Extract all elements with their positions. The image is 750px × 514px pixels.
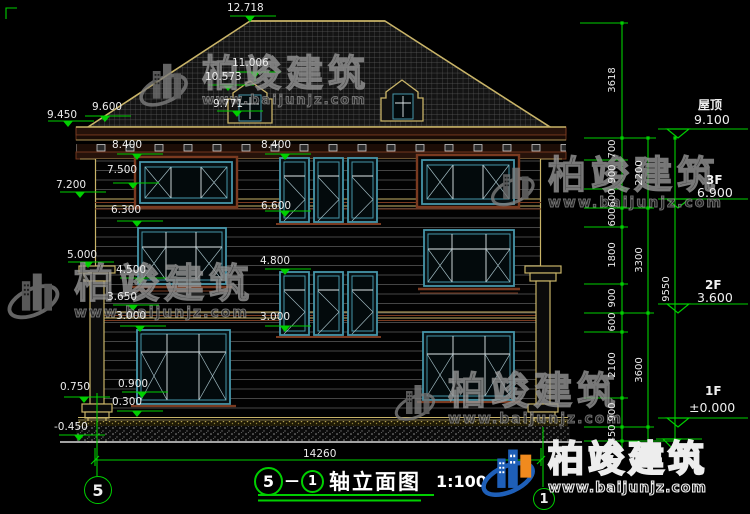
elevation-mark: 4.800 <box>260 256 290 267</box>
brand-name: 柏竣建筑 <box>548 442 708 478</box>
stair-windows-lower <box>276 272 381 337</box>
drawing-title: 5 — 1 轴立面图 1:100 <box>254 466 487 496</box>
level-name: 1F <box>705 385 722 397</box>
level-value: 3.600 <box>697 292 733 305</box>
level-value: 9.100 <box>694 114 730 127</box>
stair-windows-upper <box>276 158 381 224</box>
title-text: 轴立面图 <box>329 466 421 496</box>
chain-dim: 3300 <box>635 247 645 272</box>
title-axis-start-bubble: 5 <box>254 467 283 496</box>
elevation-mark: 3.000 <box>260 312 290 323</box>
elevation-mark: 0.900 <box>118 379 148 390</box>
elevation-mark: 6.600 <box>261 201 291 212</box>
window-1f-left <box>131 330 236 406</box>
title-dash: — <box>285 473 299 489</box>
chain-dim: 900 <box>608 164 618 183</box>
chain-dim: 9550 <box>662 276 672 301</box>
chain-dim: 600 <box>608 312 618 331</box>
level-value: ±0.000 <box>689 402 735 415</box>
elevation-mark: 3.000 <box>116 311 146 322</box>
brand-logo-icon <box>136 52 196 114</box>
overall-width-dim: 14260 <box>303 449 336 460</box>
elevation-mark: 7.200 <box>56 180 86 191</box>
elevation-mark: 10.573 <box>205 72 242 83</box>
elevation-mark: 0.300 <box>112 397 142 408</box>
elevation-mark: 8.400 <box>112 140 142 151</box>
window-3f-left <box>135 157 237 207</box>
cad-elevation-drawing: 柏竣建筑 www.baijunjz.com 柏竣建筑 www.baijunjz.… <box>0 0 750 514</box>
elevation-mark: -0.450 <box>54 422 88 433</box>
elevation-mark: 0.750 <box>60 382 90 393</box>
chain-dim: 1800 <box>608 242 618 267</box>
brand-logo-icon <box>392 374 442 428</box>
chain-dim: 2100 <box>608 352 618 377</box>
elevation-mark: 8.400 <box>261 140 291 151</box>
axis-bubble-5: 5 <box>84 476 112 504</box>
brand-logo-icon <box>4 262 68 326</box>
chain-dim: 3600 <box>635 357 645 382</box>
brand-logo-corner: 柏竣建筑 www.baijunjz.com <box>480 436 708 504</box>
watermark-url: www.baijunjz.com <box>74 304 254 324</box>
elevation-mark: 9.450 <box>47 110 77 121</box>
watermark-right: 柏竣建筑 www.baijunjz.com <box>488 156 723 214</box>
elevation-mark: 11.006 <box>232 58 269 69</box>
chain-dim: 3618 <box>608 67 618 92</box>
chain-dim: 2200 <box>635 160 645 185</box>
chain-dim: 600 <box>608 188 618 207</box>
elevation-mark: 9.600 <box>92 102 122 113</box>
window-2f-right <box>418 230 520 293</box>
title-axis-end-bubble: 1 <box>301 470 324 493</box>
elevation-mark: 3.650 <box>107 292 137 303</box>
watermark-url: www.baijunjz.com <box>448 410 623 430</box>
elevation-mark: 4.500 <box>116 265 146 276</box>
watermark-bottom: 柏竣建筑 www.baijunjz.com <box>392 372 623 430</box>
brand-logo-icon <box>488 156 542 214</box>
chain-dim: 600 <box>608 207 618 226</box>
watermark-brand: 柏竣建筑 <box>448 372 623 410</box>
chain-dim: 900 <box>608 288 618 307</box>
brand-url: www.baijunjz.com <box>548 478 708 499</box>
elevation-mark: 12.718 <box>227 3 264 14</box>
chain-dim: 900 <box>608 402 618 421</box>
elevation-mark: 6.300 <box>111 205 141 216</box>
elevation-mark: 7.500 <box>107 165 137 176</box>
chain-dim: 700 <box>608 139 618 158</box>
watermark-brand: 柏竣建筑 <box>74 264 254 304</box>
brand-logo-icon <box>480 436 544 504</box>
level-value: 6.900 <box>697 187 733 200</box>
elevation-mark: 9.771 <box>213 99 243 110</box>
elevation-mark: 5.000 <box>67 250 97 261</box>
level-name: 屋顶 <box>698 99 722 111</box>
